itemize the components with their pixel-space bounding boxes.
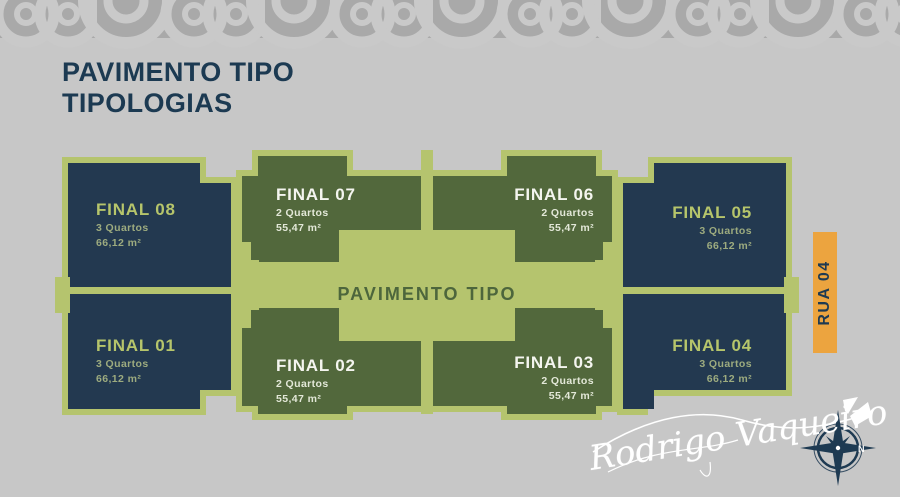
unit-name: FINAL 02 bbox=[276, 356, 426, 376]
unit-rooms: 3 Quartos bbox=[96, 358, 246, 371]
unit-label-final-07: FINAL 07 2 Quartos 55,47 m² bbox=[276, 185, 426, 235]
unit-rooms: 2 Quartos bbox=[446, 375, 594, 388]
unit-name: FINAL 08 bbox=[96, 200, 246, 220]
unit-name: FINAL 06 bbox=[446, 185, 594, 205]
unit-area: 55,47 m² bbox=[276, 222, 426, 235]
street-sign-label: RUA 04 bbox=[816, 260, 834, 325]
unit-label-final-02: FINAL 02 2 Quartos 55,47 m² bbox=[276, 356, 426, 406]
unit-area: 66,12 m² bbox=[602, 373, 752, 386]
compass-north-label: N bbox=[858, 444, 865, 454]
unit-rooms: 3 Quartos bbox=[602, 358, 752, 371]
unit-area: 55,47 m² bbox=[276, 393, 426, 406]
unit-area: 55,47 m² bbox=[446, 390, 594, 403]
unit-rooms: 2 Quartos bbox=[446, 207, 594, 220]
unit-name: FINAL 03 bbox=[446, 353, 594, 373]
unit-label-final-03: FINAL 03 2 Quartos 55,47 m² bbox=[446, 353, 594, 403]
unit-label-final-08: FINAL 08 3 Quartos 66,12 m² bbox=[96, 200, 246, 250]
unit-area: 66,12 m² bbox=[96, 373, 246, 386]
unit-rooms: 3 Quartos bbox=[96, 222, 246, 235]
page-title-line1: PAVIMENTO TIPO bbox=[62, 57, 294, 88]
unit-rooms: 2 Quartos bbox=[276, 378, 426, 391]
unit-rooms: 3 Quartos bbox=[602, 225, 752, 238]
arc-pattern-band bbox=[0, 0, 900, 43]
brochure-page: N PAVIMENTO TIPO TIPOLOGIAS FINAL 08 3 Q… bbox=[0, 0, 900, 497]
page-title: PAVIMENTO TIPO TIPOLOGIAS bbox=[62, 57, 294, 119]
unit-name: FINAL 05 bbox=[602, 203, 752, 223]
street-sign-rua-04: RUA 04 bbox=[813, 232, 837, 353]
unit-label-final-04: FINAL 04 3 Quartos 66,12 m² bbox=[602, 336, 752, 386]
page-title-line2: TIPOLOGIAS bbox=[62, 88, 294, 119]
unit-rooms: 2 Quartos bbox=[276, 207, 426, 220]
unit-name: FINAL 04 bbox=[602, 336, 752, 356]
unit-label-final-05: FINAL 05 3 Quartos 66,12 m² bbox=[602, 203, 752, 253]
unit-name: FINAL 01 bbox=[96, 336, 246, 356]
unit-area: 66,12 m² bbox=[96, 237, 246, 250]
unit-label-final-01: FINAL 01 3 Quartos 66,12 m² bbox=[96, 336, 246, 386]
unit-label-final-06: FINAL 06 2 Quartos 55,47 m² bbox=[446, 185, 594, 235]
unit-name: FINAL 07 bbox=[276, 185, 426, 205]
unit-area: 66,12 m² bbox=[602, 240, 752, 253]
corridor-label: PAVIMENTO TIPO bbox=[297, 284, 557, 305]
unit-area: 55,47 m² bbox=[446, 222, 594, 235]
